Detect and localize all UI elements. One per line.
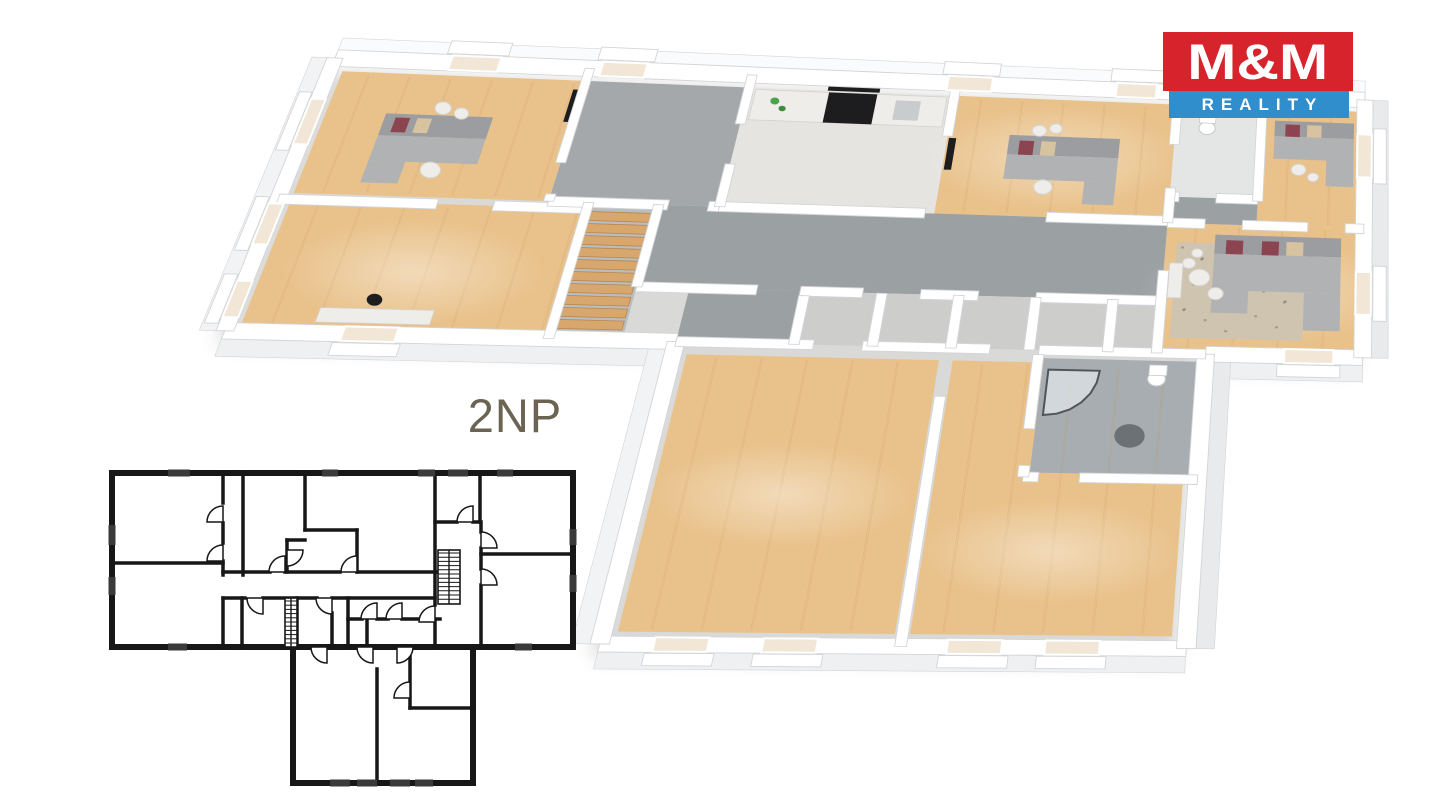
floor-label: 2NP bbox=[455, 388, 575, 443]
logo-red-box: M&M bbox=[1163, 32, 1353, 91]
company-logo: M&M REALITY bbox=[1163, 32, 1353, 118]
2d-floorplan bbox=[95, 455, 605, 810]
page-root: { "page": {"width": 1440, "height": 810,… bbox=[0, 0, 1440, 810]
logo-bottom-text: REALITY bbox=[1195, 95, 1324, 115]
logo-top-text: M&M bbox=[1188, 33, 1329, 91]
logo-blue-bar: REALITY bbox=[1169, 91, 1349, 118]
